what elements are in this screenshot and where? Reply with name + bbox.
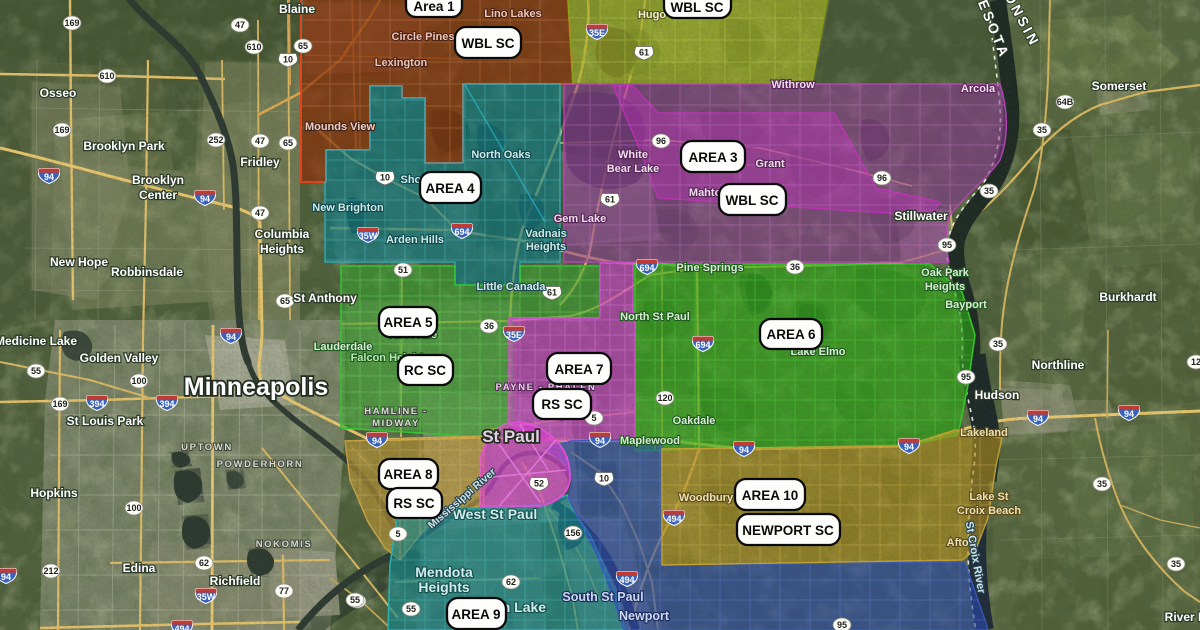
- svg-text:51: 51: [398, 265, 408, 275]
- svg-text:Croix Beach: Croix Beach: [957, 505, 1021, 517]
- svg-text:95: 95: [942, 240, 952, 250]
- svg-text:Minneapolis: Minneapolis: [184, 373, 328, 401]
- svg-text:120: 120: [657, 393, 672, 403]
- svg-text:New Brighton: New Brighton: [312, 202, 384, 214]
- svg-text:Golden Valley: Golden Valley: [80, 351, 159, 365]
- svg-text:Newport: Newport: [619, 609, 670, 623]
- svg-text:Fridley: Fridley: [240, 155, 280, 169]
- svg-text:10: 10: [599, 474, 609, 484]
- svg-text:94: 94: [226, 332, 236, 342]
- svg-text:Heights: Heights: [925, 281, 965, 293]
- svg-text:610: 610: [99, 71, 114, 81]
- svg-text:Withrow: Withrow: [771, 79, 815, 91]
- svg-text:65: 65: [283, 138, 293, 148]
- svg-text:Osseo: Osseo: [40, 86, 77, 100]
- svg-text:NOKOMIS: NOKOMIS: [256, 539, 313, 550]
- svg-text:Heights: Heights: [260, 242, 304, 256]
- svg-text:Medicine Lake: Medicine Lake: [0, 334, 77, 348]
- svg-text:96: 96: [656, 136, 666, 146]
- svg-text:62: 62: [506, 577, 516, 587]
- svg-text:North St Paul: North St Paul: [620, 311, 690, 323]
- svg-text:MIDWAY: MIDWAY: [372, 418, 420, 429]
- svg-text:North Oaks: North Oaks: [471, 149, 530, 161]
- svg-text:Maplewood: Maplewood: [620, 435, 680, 447]
- svg-text:RS SC: RS SC: [541, 397, 583, 412]
- svg-text:WBL SC: WBL SC: [726, 193, 779, 208]
- svg-text:62: 62: [199, 558, 209, 568]
- svg-text:610: 610: [246, 42, 261, 52]
- svg-text:Edina: Edina: [123, 561, 156, 575]
- svg-text:POWDERHORN: POWDERHORN: [217, 459, 304, 470]
- svg-text:Columbia: Columbia: [255, 227, 310, 241]
- svg-text:AREA 9: AREA 9: [451, 607, 500, 622]
- svg-text:NEWPORT SC: NEWPORT SC: [742, 523, 834, 538]
- svg-text:252: 252: [208, 135, 223, 145]
- svg-text:Burkhardt: Burkhardt: [1099, 290, 1156, 304]
- svg-text:AREA 8: AREA 8: [383, 467, 433, 482]
- svg-text:36: 36: [790, 262, 800, 272]
- svg-text:AREA 5: AREA 5: [383, 315, 433, 330]
- svg-text:35: 35: [1037, 125, 1047, 135]
- svg-text:Woodbury: Woodbury: [679, 492, 734, 504]
- svg-text:94: 94: [200, 194, 210, 204]
- svg-text:169: 169: [64, 18, 79, 28]
- svg-text:36: 36: [484, 321, 494, 331]
- svg-text:Lakeland: Lakeland: [960, 427, 1008, 439]
- svg-text:Arden Hills: Arden Hills: [386, 234, 444, 246]
- svg-text:35W: 35W: [359, 231, 378, 241]
- svg-text:St Paul: St Paul: [482, 427, 540, 446]
- svg-text:Heights: Heights: [526, 241, 566, 253]
- svg-text:212: 212: [43, 566, 58, 576]
- svg-text:UPTOWN: UPTOWN: [181, 442, 233, 453]
- svg-text:35: 35: [984, 186, 994, 196]
- svg-text:Lake St: Lake St: [969, 491, 1008, 503]
- svg-text:494: 494: [174, 624, 189, 630]
- svg-text:12: 12: [1191, 357, 1200, 367]
- svg-text:35: 35: [1097, 479, 1107, 489]
- svg-text:Stillwater: Stillwater: [894, 209, 948, 223]
- svg-text:94: 94: [904, 442, 914, 452]
- svg-text:65: 65: [298, 41, 308, 51]
- svg-text:61: 61: [639, 48, 649, 58]
- svg-text:St Anthony: St Anthony: [293, 291, 357, 305]
- svg-text:47: 47: [235, 20, 245, 30]
- svg-text:169: 169: [54, 125, 69, 135]
- svg-text:Area 1: Area 1: [413, 0, 455, 14]
- svg-text:169: 169: [52, 399, 67, 409]
- svg-text:Mounds View: Mounds View: [305, 121, 376, 133]
- svg-text:West St Paul: West St Paul: [453, 506, 538, 522]
- svg-text:35E: 35E: [589, 28, 605, 38]
- svg-text:WBL SC: WBL SC: [671, 0, 724, 15]
- svg-text:694: 694: [639, 263, 654, 273]
- svg-text:94: 94: [595, 436, 605, 446]
- svg-text:52: 52: [534, 479, 544, 489]
- svg-text:Northline: Northline: [1032, 358, 1085, 372]
- svg-text:61: 61: [605, 195, 615, 205]
- svg-text:77: 77: [279, 586, 289, 596]
- svg-text:New Hope: New Hope: [50, 255, 108, 269]
- svg-text:AREA 6: AREA 6: [766, 327, 816, 342]
- svg-text:Heights: Heights: [418, 579, 470, 595]
- svg-text:55: 55: [350, 595, 360, 605]
- svg-text:Brooklyn Park: Brooklyn Park: [83, 139, 165, 153]
- svg-text:Oak Park: Oak Park: [921, 267, 970, 279]
- svg-text:Oakdale: Oakdale: [673, 415, 716, 427]
- svg-text:65: 65: [280, 296, 290, 306]
- svg-text:94: 94: [739, 445, 749, 455]
- svg-text:Blaine: Blaine: [279, 2, 315, 16]
- svg-text:Richfield: Richfield: [210, 574, 261, 588]
- svg-text:Robbinsdale: Robbinsdale: [111, 265, 183, 279]
- svg-text:100: 100: [126, 503, 141, 513]
- svg-text:AREA 10: AREA 10: [742, 488, 799, 503]
- svg-text:RC SC: RC SC: [404, 363, 446, 378]
- svg-text:694: 694: [695, 340, 710, 350]
- svg-text:55: 55: [31, 366, 41, 376]
- svg-text:35E: 35E: [506, 330, 522, 340]
- svg-text:Gem Lake: Gem Lake: [554, 213, 607, 225]
- svg-text:494: 494: [619, 575, 634, 585]
- svg-text:10: 10: [380, 173, 390, 183]
- svg-text:Bear Lake: Bear Lake: [607, 163, 660, 175]
- svg-text:10: 10: [283, 55, 293, 65]
- svg-text:Mendota: Mendota: [415, 564, 473, 580]
- svg-text:394: 394: [159, 399, 174, 409]
- svg-text:AREA 7: AREA 7: [554, 362, 603, 377]
- svg-text:156: 156: [565, 528, 580, 538]
- svg-text:South St Paul: South St Paul: [562, 590, 643, 604]
- svg-text:Center: Center: [139, 188, 177, 202]
- svg-text:64B: 64B: [1057, 97, 1074, 107]
- svg-text:394: 394: [89, 399, 104, 409]
- svg-text:95: 95: [961, 372, 971, 382]
- svg-text:WBL SC: WBL SC: [462, 36, 515, 51]
- svg-text:HAMLINE -: HAMLINE -: [364, 406, 427, 417]
- svg-text:RS SC: RS SC: [393, 496, 435, 511]
- svg-text:Hopkins: Hopkins: [30, 486, 78, 500]
- svg-text:61: 61: [547, 288, 557, 298]
- svg-text:Bayport: Bayport: [945, 299, 987, 311]
- svg-text:Lexington: Lexington: [375, 57, 428, 69]
- svg-text:94: 94: [44, 172, 54, 182]
- svg-text:Vadnais: Vadnais: [525, 228, 567, 240]
- svg-text:94: 94: [372, 436, 382, 446]
- svg-text:White: White: [618, 149, 648, 161]
- svg-text:Hugo: Hugo: [638, 9, 666, 21]
- svg-text:47: 47: [255, 136, 265, 146]
- svg-text:35W: 35W: [197, 592, 216, 602]
- svg-text:5: 5: [591, 413, 596, 423]
- svg-text:35: 35: [1171, 559, 1181, 569]
- svg-text:AREA 3: AREA 3: [688, 150, 738, 165]
- svg-text:55: 55: [406, 604, 416, 614]
- svg-text:494: 494: [666, 514, 681, 524]
- svg-text:5: 5: [395, 529, 400, 539]
- svg-text:Grant: Grant: [755, 158, 785, 170]
- svg-text:Arcola: Arcola: [961, 83, 996, 95]
- svg-text:96: 96: [877, 173, 887, 183]
- svg-text:94: 94: [1033, 414, 1043, 424]
- svg-text:100: 100: [131, 376, 146, 386]
- svg-text:Lino Lakes: Lino Lakes: [484, 8, 541, 20]
- svg-text:95: 95: [837, 620, 847, 630]
- svg-text:Pine Springs: Pine Springs: [676, 262, 743, 274]
- svg-text:Brooklyn: Brooklyn: [132, 173, 184, 187]
- svg-text:AREA 4: AREA 4: [425, 181, 475, 196]
- svg-text:St Louis Park: St Louis Park: [67, 414, 144, 428]
- svg-text:Circle Pines: Circle Pines: [392, 31, 455, 43]
- svg-text:Little Canada: Little Canada: [476, 281, 546, 293]
- svg-text:Somerset: Somerset: [1092, 79, 1147, 93]
- svg-text:694: 694: [454, 227, 469, 237]
- svg-text:River F: River F: [1165, 610, 1200, 624]
- svg-text:35: 35: [993, 339, 1003, 349]
- svg-text:94: 94: [1, 572, 11, 582]
- svg-text:94: 94: [1124, 409, 1134, 419]
- svg-text:47: 47: [255, 208, 265, 218]
- svg-text:Hudson: Hudson: [975, 388, 1020, 402]
